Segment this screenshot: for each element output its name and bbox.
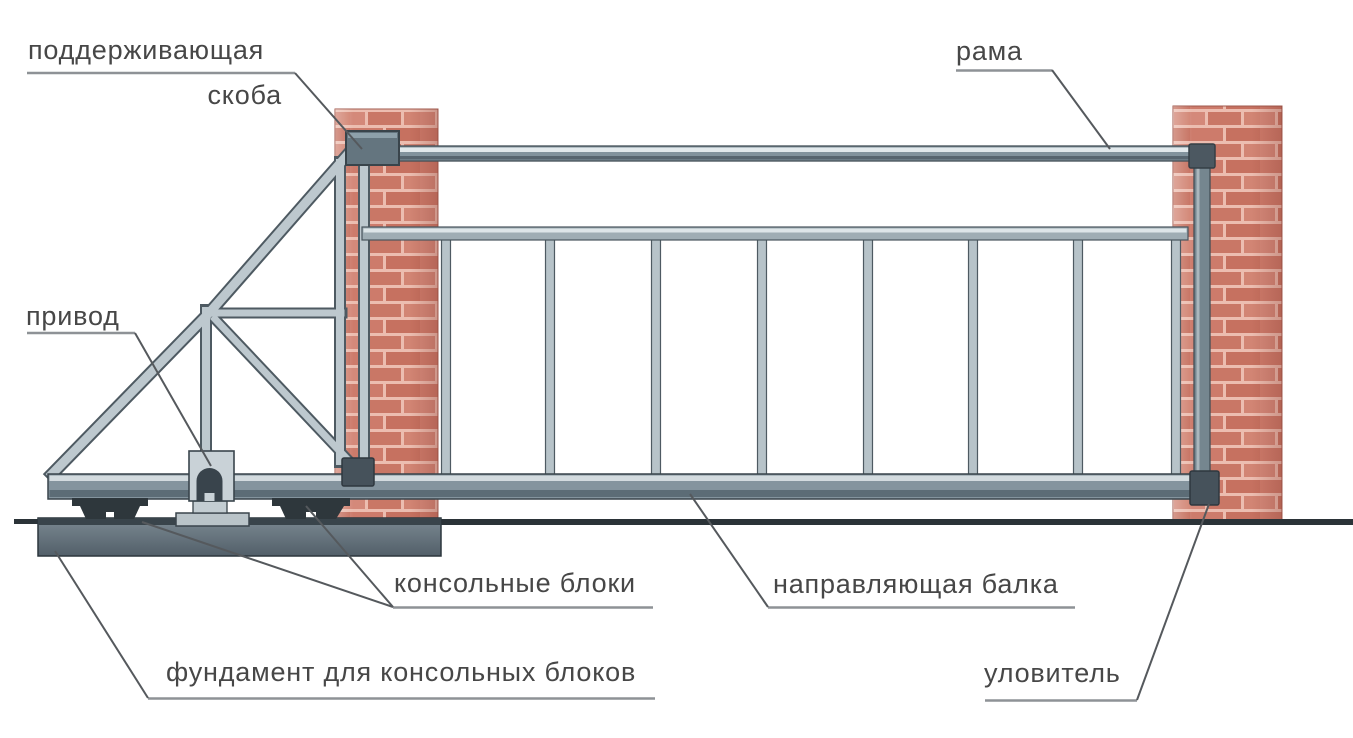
catcher-block bbox=[1190, 471, 1219, 505]
leader-catcher bbox=[1137, 504, 1209, 700]
support-bracket bbox=[346, 131, 399, 165]
diagram-canvas bbox=[0, 0, 1353, 738]
gate-infill-bars bbox=[442, 238, 1181, 475]
leader-frame bbox=[1052, 70, 1110, 149]
label-guide-beam: направляющая балка bbox=[773, 570, 1059, 598]
label-drive: привод bbox=[26, 302, 120, 330]
gate-right-post bbox=[1194, 158, 1210, 473]
truss-brace bbox=[215, 319, 349, 461]
leader-guide-beam bbox=[690, 494, 768, 607]
label-supporting-bracket-line1: поддерживающая bbox=[28, 36, 264, 64]
label-catcher: уловитель bbox=[984, 659, 1121, 687]
label-foundation: фундамент для консольных блоков bbox=[166, 658, 636, 686]
ground-line bbox=[441, 519, 1353, 525]
bottom-corner-joint bbox=[342, 458, 374, 486]
gate-diagram: поддерживающая скоба рама привод консоль… bbox=[0, 0, 1353, 738]
infill-top-rail bbox=[362, 227, 1188, 240]
frame-top-rail bbox=[396, 146, 1196, 161]
leader-foundation bbox=[55, 551, 148, 698]
leader-lines bbox=[55, 70, 1209, 700]
label-cantilever-blocks: консольные блоки bbox=[394, 569, 636, 597]
label-supporting-bracket-line2: скоба bbox=[160, 81, 282, 109]
cantilever-block-1 bbox=[72, 498, 148, 519]
top-corner-joint bbox=[1189, 144, 1215, 168]
ground-line-left bbox=[14, 519, 40, 524]
label-frame: рама bbox=[956, 37, 1023, 65]
